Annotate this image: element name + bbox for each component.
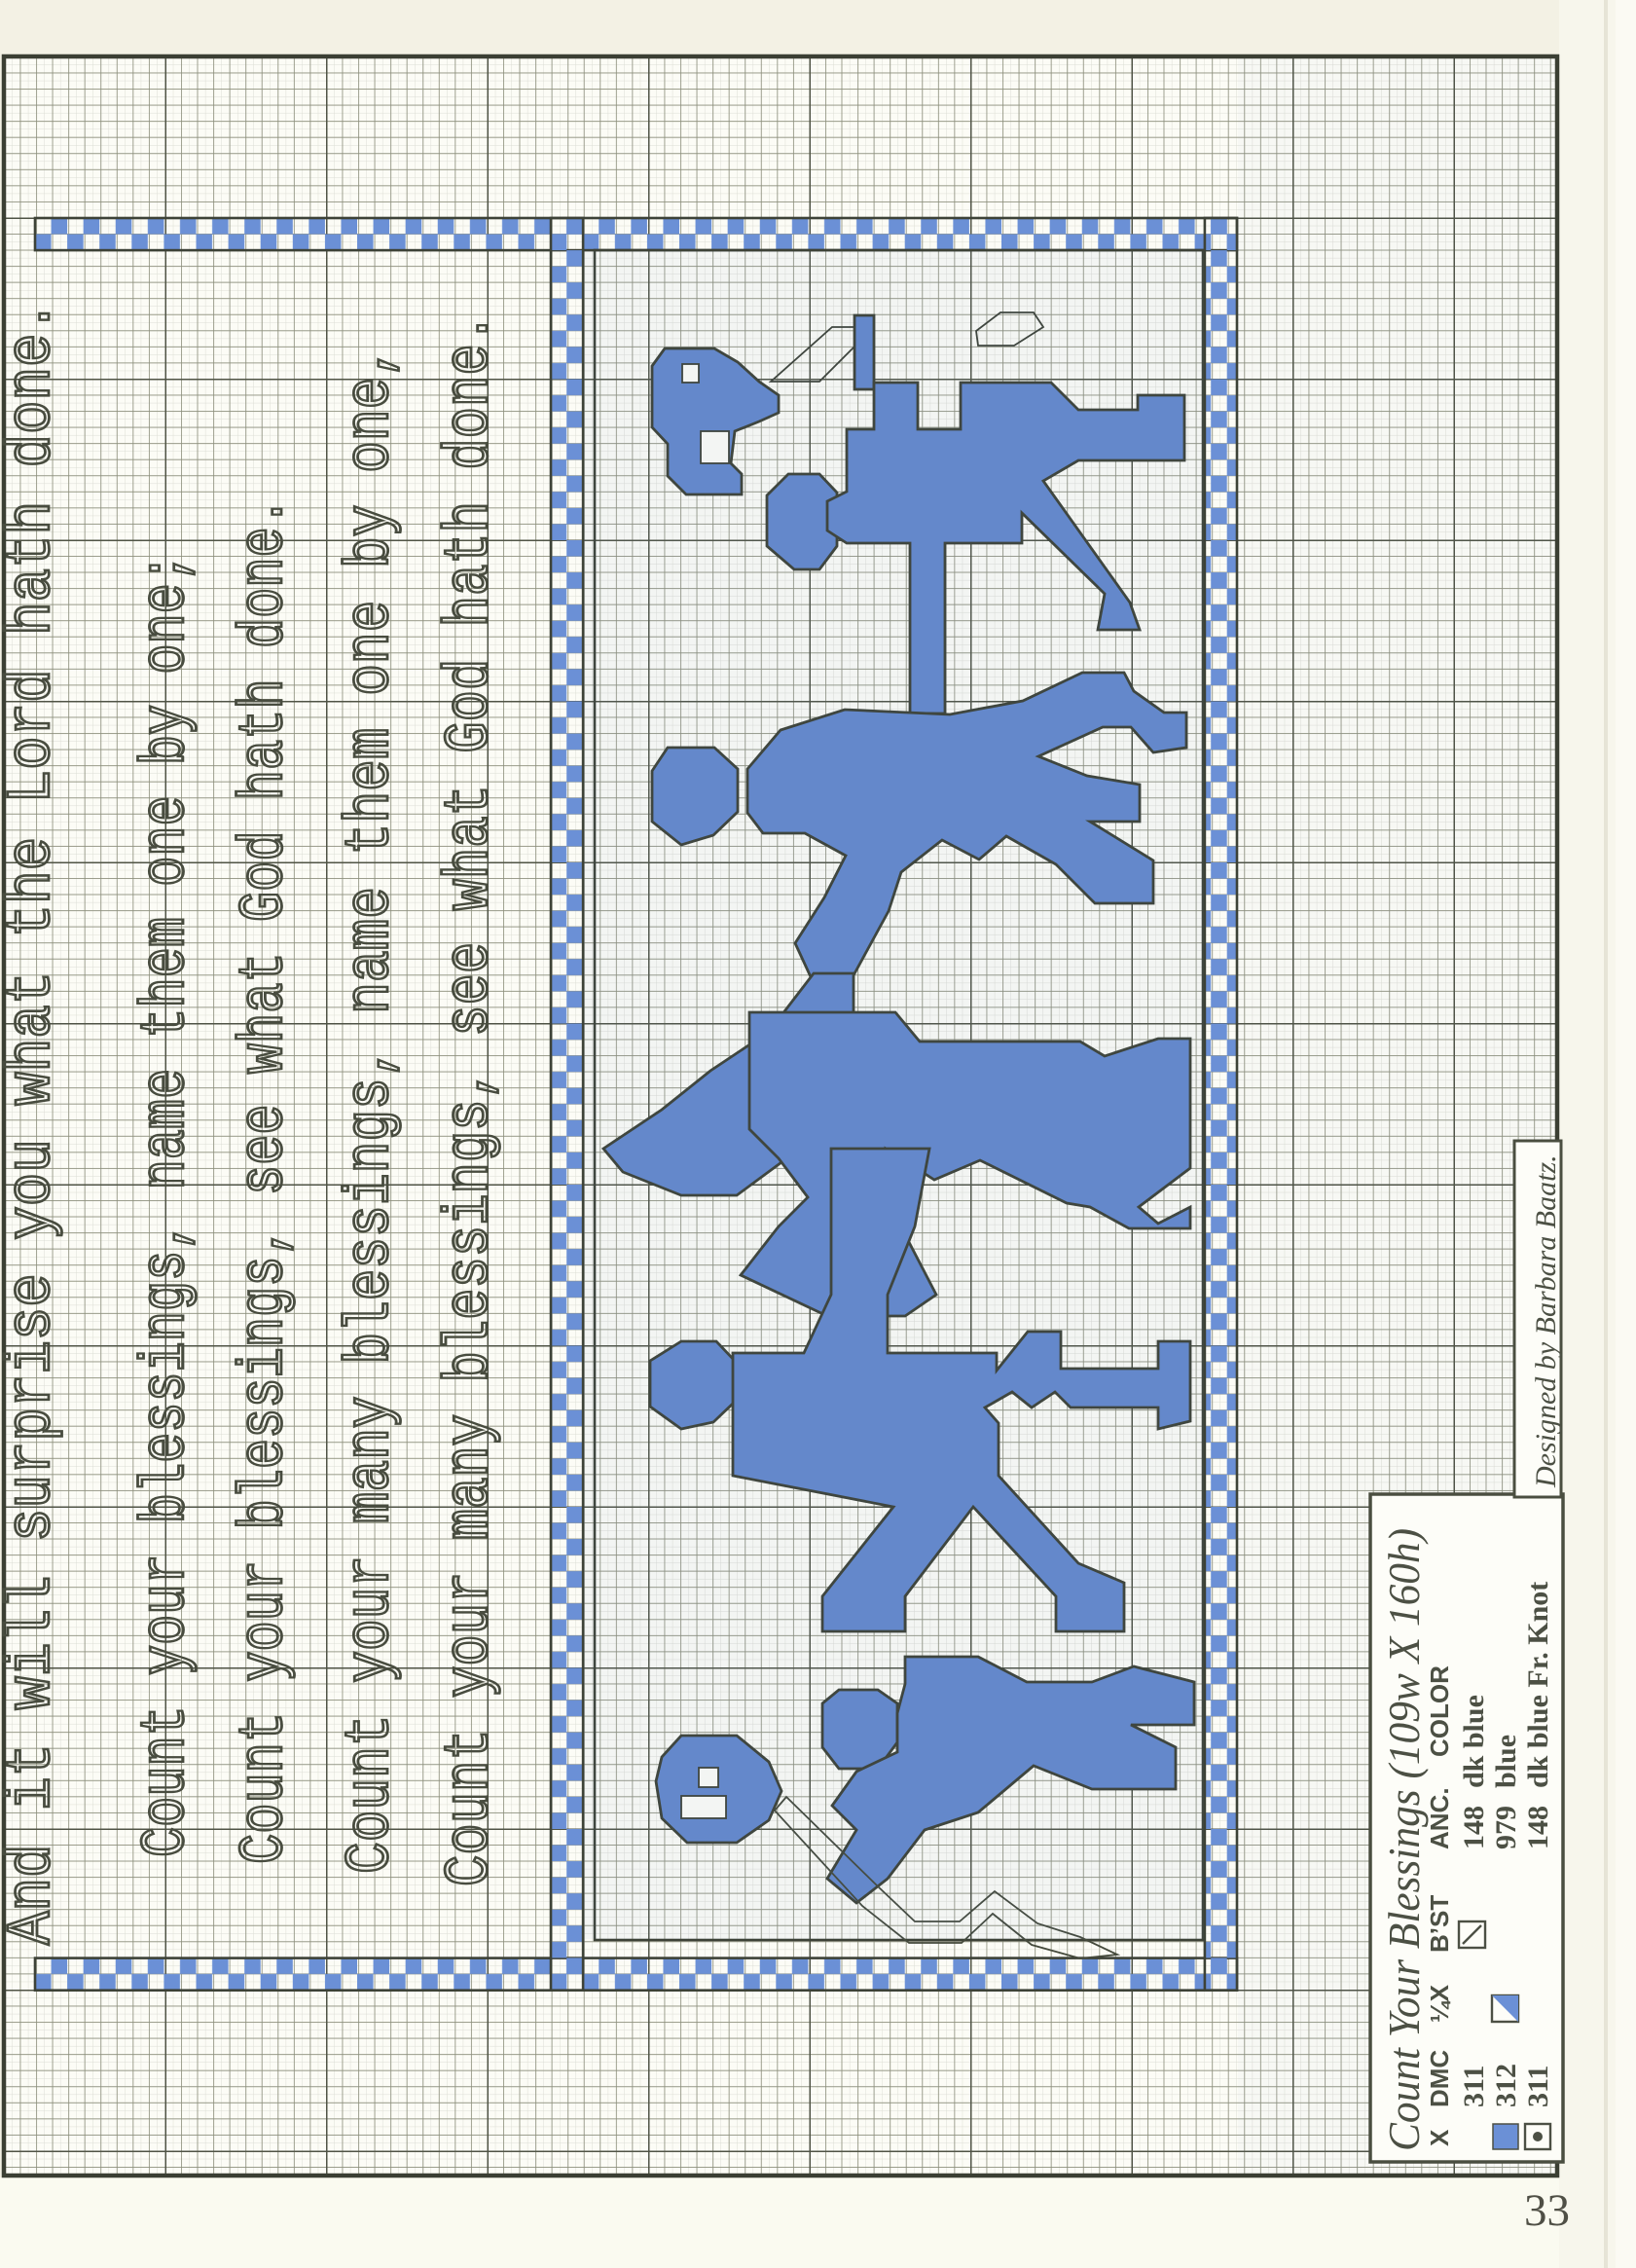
svg-text:Count your blessings, see what: Count your blessings, see what God hath …	[231, 496, 301, 1864]
svg-text:¼X: ¼X	[1425, 1984, 1454, 2023]
svg-text:DMC: DMC	[1425, 2050, 1454, 2107]
svg-text:Count your many blessings, nam: Count your many blessings, name them one…	[337, 346, 407, 1874]
svg-text:148: 148	[1458, 1806, 1490, 1849]
svg-text:33: 33	[1524, 2185, 1570, 2236]
svg-text:Designed by Barbara Baatz.: Designed by Barbara Baatz.	[1530, 1154, 1562, 1488]
svg-text:148: 148	[1522, 1806, 1554, 1849]
svg-text:blue: blue	[1490, 1735, 1522, 1788]
svg-text:ANC.: ANC.	[1425, 1787, 1454, 1849]
svg-text:B’ST: B’ST	[1425, 1895, 1454, 1953]
svg-text:311: 311	[1458, 2066, 1490, 2107]
svg-text:Count your blessings, name the: Count your blessings, name them one by o…	[132, 553, 202, 1857]
svg-text:Count your many blessings, see: Count your many blessings, see what God …	[436, 312, 506, 1886]
svg-text:And it will surprise you what: And it will surprise you what the Lord h…	[0, 300, 68, 1945]
svg-text:312: 312	[1490, 2064, 1522, 2107]
svg-text:311: 311	[1522, 2066, 1554, 2107]
svg-text:COLOR: COLOR	[1425, 1665, 1454, 1757]
svg-text:979: 979	[1490, 1806, 1522, 1849]
svg-text:dk blue Fr. Knot: dk blue Fr. Knot	[1522, 1582, 1554, 1788]
svg-text:X: X	[1425, 2129, 1454, 2146]
svg-text:dk blue: dk blue	[1458, 1695, 1490, 1788]
svg-text:Count Your Blessings (109w X 1: Count Your Blessings (109w X 160h)	[1379, 1528, 1429, 2151]
